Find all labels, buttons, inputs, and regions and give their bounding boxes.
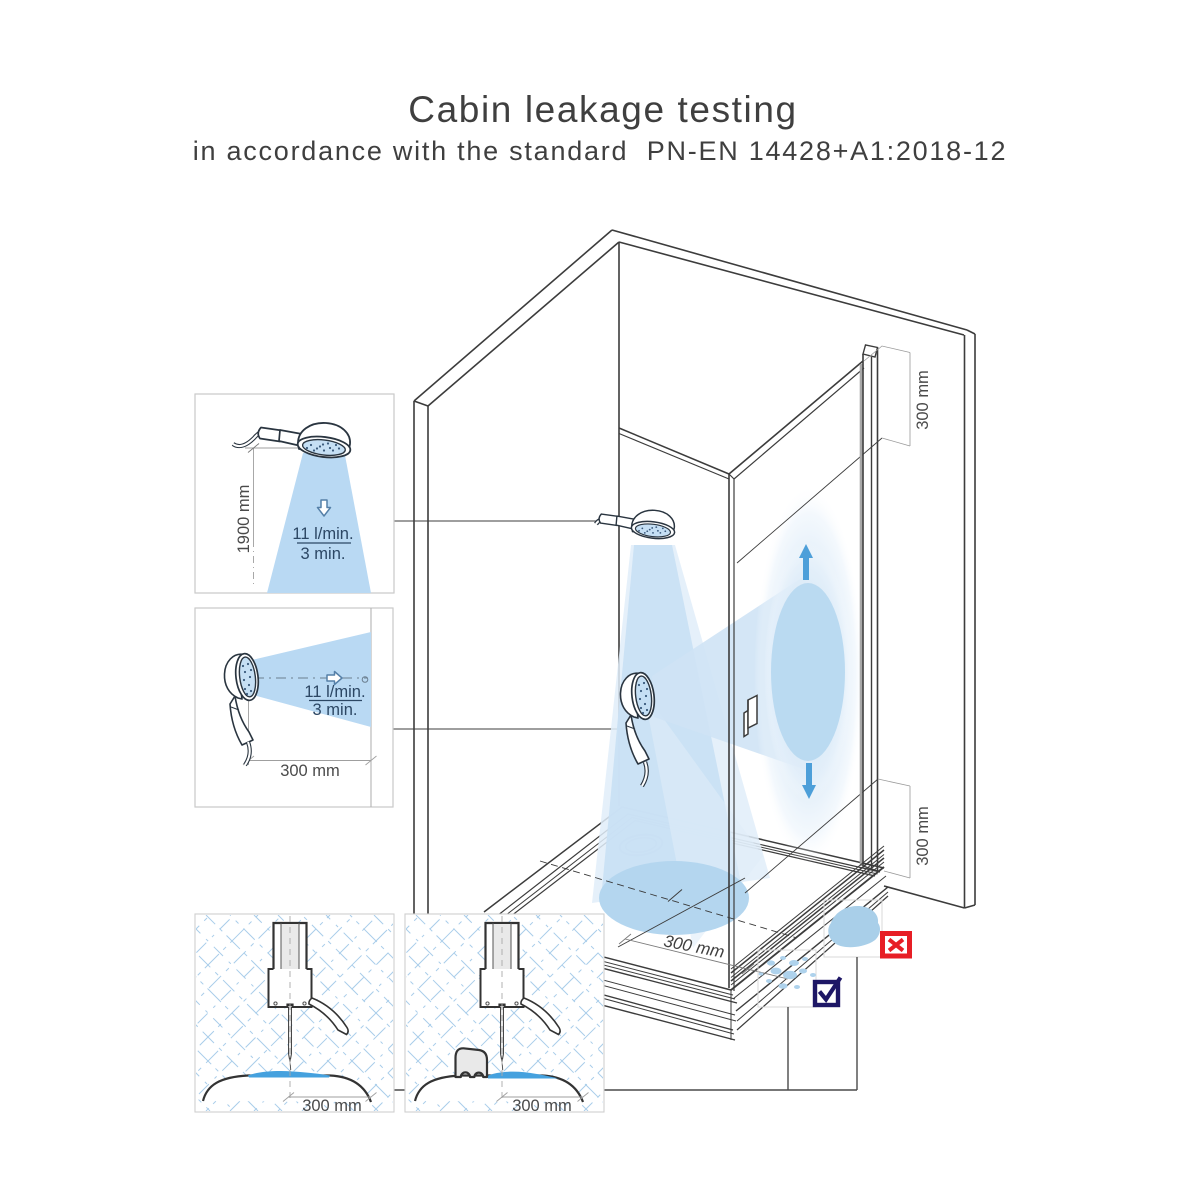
svg-text:in accordance with the standar: in accordance with the standard PN-EN 14… xyxy=(193,136,1007,166)
svg-text:300 mm: 300 mm xyxy=(280,762,340,780)
svg-text:3 min.: 3 min. xyxy=(301,545,346,563)
svg-text:300 mm: 300 mm xyxy=(302,1097,362,1115)
svg-text:300 mm: 300 mm xyxy=(914,370,932,430)
svg-text:300 mm: 300 mm xyxy=(512,1097,572,1115)
svg-text:3 min.: 3 min. xyxy=(313,701,358,719)
svg-text:300 mm: 300 mm xyxy=(914,806,932,866)
svg-text:Cabin leakage testing: Cabin leakage testing xyxy=(408,89,797,130)
svg-text:11 l/min.: 11 l/min. xyxy=(292,525,353,543)
svg-text:11 l/min.: 11 l/min. xyxy=(304,683,365,701)
svg-text:1900 mm: 1900 mm xyxy=(235,485,253,554)
